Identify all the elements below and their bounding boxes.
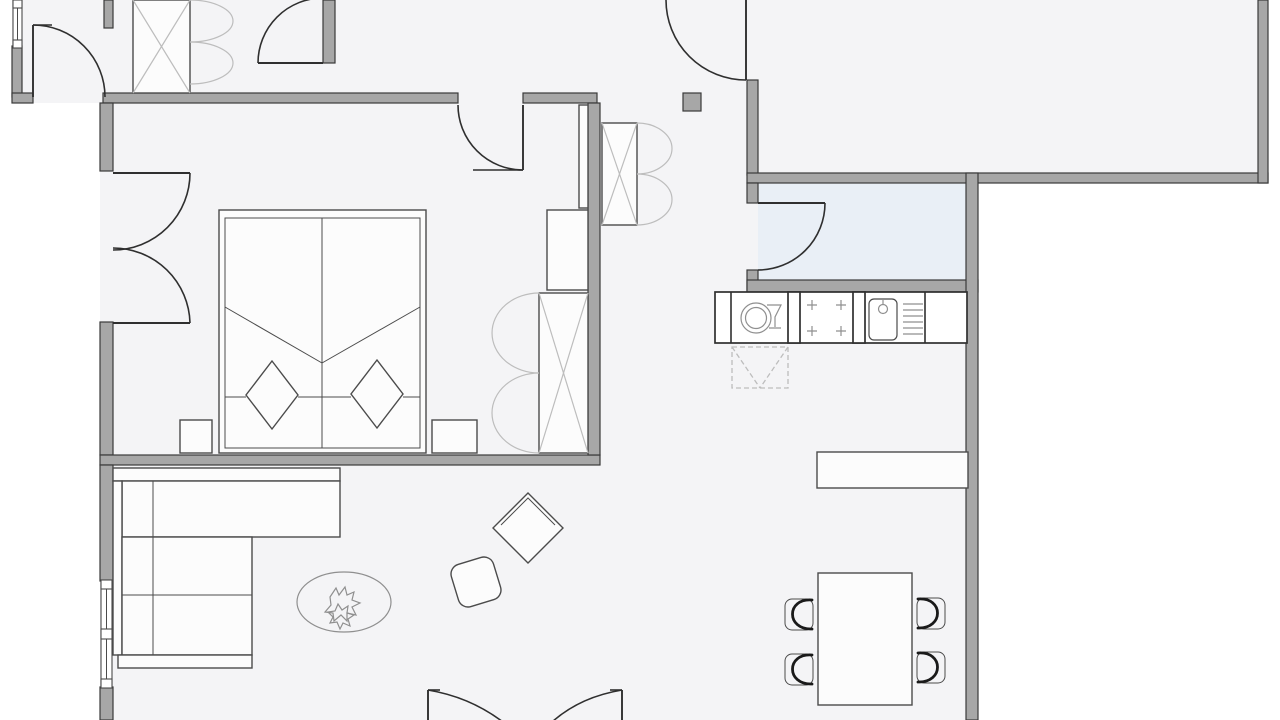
window-entry-node-top xyxy=(13,0,22,8)
window-living-node-top xyxy=(101,580,112,589)
floor-entry-hall xyxy=(12,0,747,103)
wall-stub-entry xyxy=(104,0,113,28)
sofa-back-left xyxy=(113,481,122,655)
wall-right-main xyxy=(966,173,978,720)
bedroom-wall-shelf xyxy=(579,105,588,208)
sofa-chaise xyxy=(122,537,252,655)
floor-top-right-room xyxy=(747,0,1268,183)
wall-wet-left-upper xyxy=(747,183,758,203)
window-entry-node-bottom xyxy=(13,40,22,48)
wall-top-right-room-bottom xyxy=(747,173,1268,183)
wall-entry-left xyxy=(12,46,22,97)
sofa-seat-top xyxy=(122,481,340,537)
wall-column-hall xyxy=(683,93,701,111)
wall-bedroom-left-lower xyxy=(100,322,113,455)
floor-wet-room xyxy=(758,183,966,281)
bedroom-dresser xyxy=(547,210,588,290)
wall-top-right xyxy=(523,93,597,103)
wall-bedroom-left-upper xyxy=(100,103,113,171)
kitchen-divider-bar-2 xyxy=(853,292,865,343)
wall-bedroom-right xyxy=(588,103,600,455)
sofa-armrest-bottom xyxy=(118,655,252,668)
nightstand-left xyxy=(180,420,212,453)
wall-stub-hall xyxy=(323,0,335,63)
wall-entry-bottom xyxy=(12,93,33,103)
sofa-back-top xyxy=(113,468,340,481)
kitchen-divider-bar-1 xyxy=(788,292,800,343)
wall-kitchen-left xyxy=(747,80,758,175)
sink-basin xyxy=(869,299,897,340)
wall-top-main xyxy=(103,93,458,103)
sideboard xyxy=(817,452,968,488)
wall-living-left-lower xyxy=(100,687,113,720)
nightstand-right xyxy=(432,420,477,453)
wall-top-right-room-right xyxy=(1258,0,1268,183)
floor-plan-page xyxy=(0,0,1280,720)
floor-plan xyxy=(0,0,1280,720)
wall-living-left-upper xyxy=(100,465,113,581)
dining-table xyxy=(818,573,912,705)
window-living-node-mid xyxy=(101,629,112,639)
wall-kitchen-top xyxy=(747,280,978,292)
window-living-node-bottom xyxy=(101,679,112,688)
wall-bedroom-bottom xyxy=(100,455,600,465)
